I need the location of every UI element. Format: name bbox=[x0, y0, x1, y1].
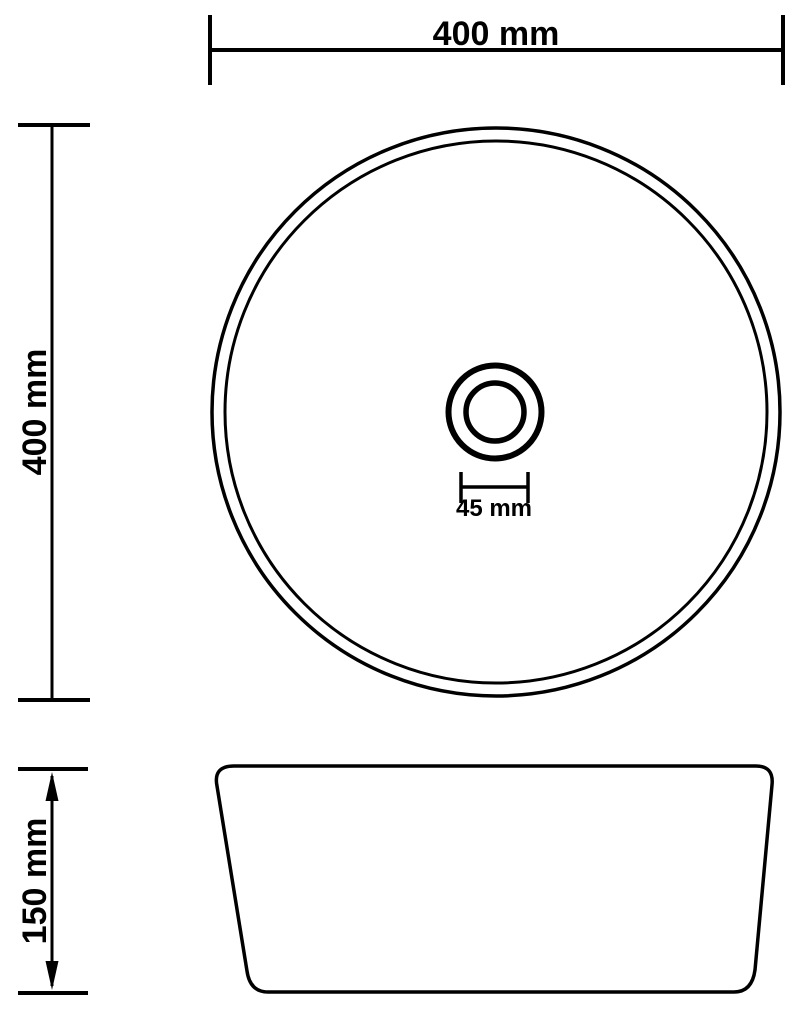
left-height-dimension-label: 400 mm bbox=[16, 349, 54, 476]
basin-outer-rim-circle bbox=[212, 128, 780, 696]
dimension-drain-width: 45 mm bbox=[456, 472, 532, 522]
arrow-up-icon bbox=[46, 772, 59, 801]
basin-dimension-drawing: 400 mm 400 mm 45 mm bbox=[0, 0, 798, 1013]
dimension-top-width: 400 mm bbox=[210, 15, 783, 85]
top-width-dimension-label: 400 mm bbox=[433, 15, 560, 53]
side-height-dimension-label: 150 mm bbox=[16, 818, 54, 945]
drain-inner-circle bbox=[466, 383, 524, 441]
dimension-side-height: 150 mm bbox=[16, 769, 88, 993]
basin-inner-rim-circle bbox=[225, 141, 767, 683]
basin-top-view bbox=[212, 128, 780, 696]
dimension-left-height: 400 mm bbox=[16, 125, 90, 700]
technical-drawing-canvas: 400 mm 400 mm 45 mm bbox=[0, 0, 798, 1013]
arrow-down-icon bbox=[46, 961, 59, 990]
drain-outer-circle bbox=[449, 366, 542, 459]
drain-width-dimension-label: 45 mm bbox=[456, 495, 532, 522]
basin-side-outline bbox=[216, 766, 772, 992]
basin-side-view bbox=[216, 766, 772, 992]
